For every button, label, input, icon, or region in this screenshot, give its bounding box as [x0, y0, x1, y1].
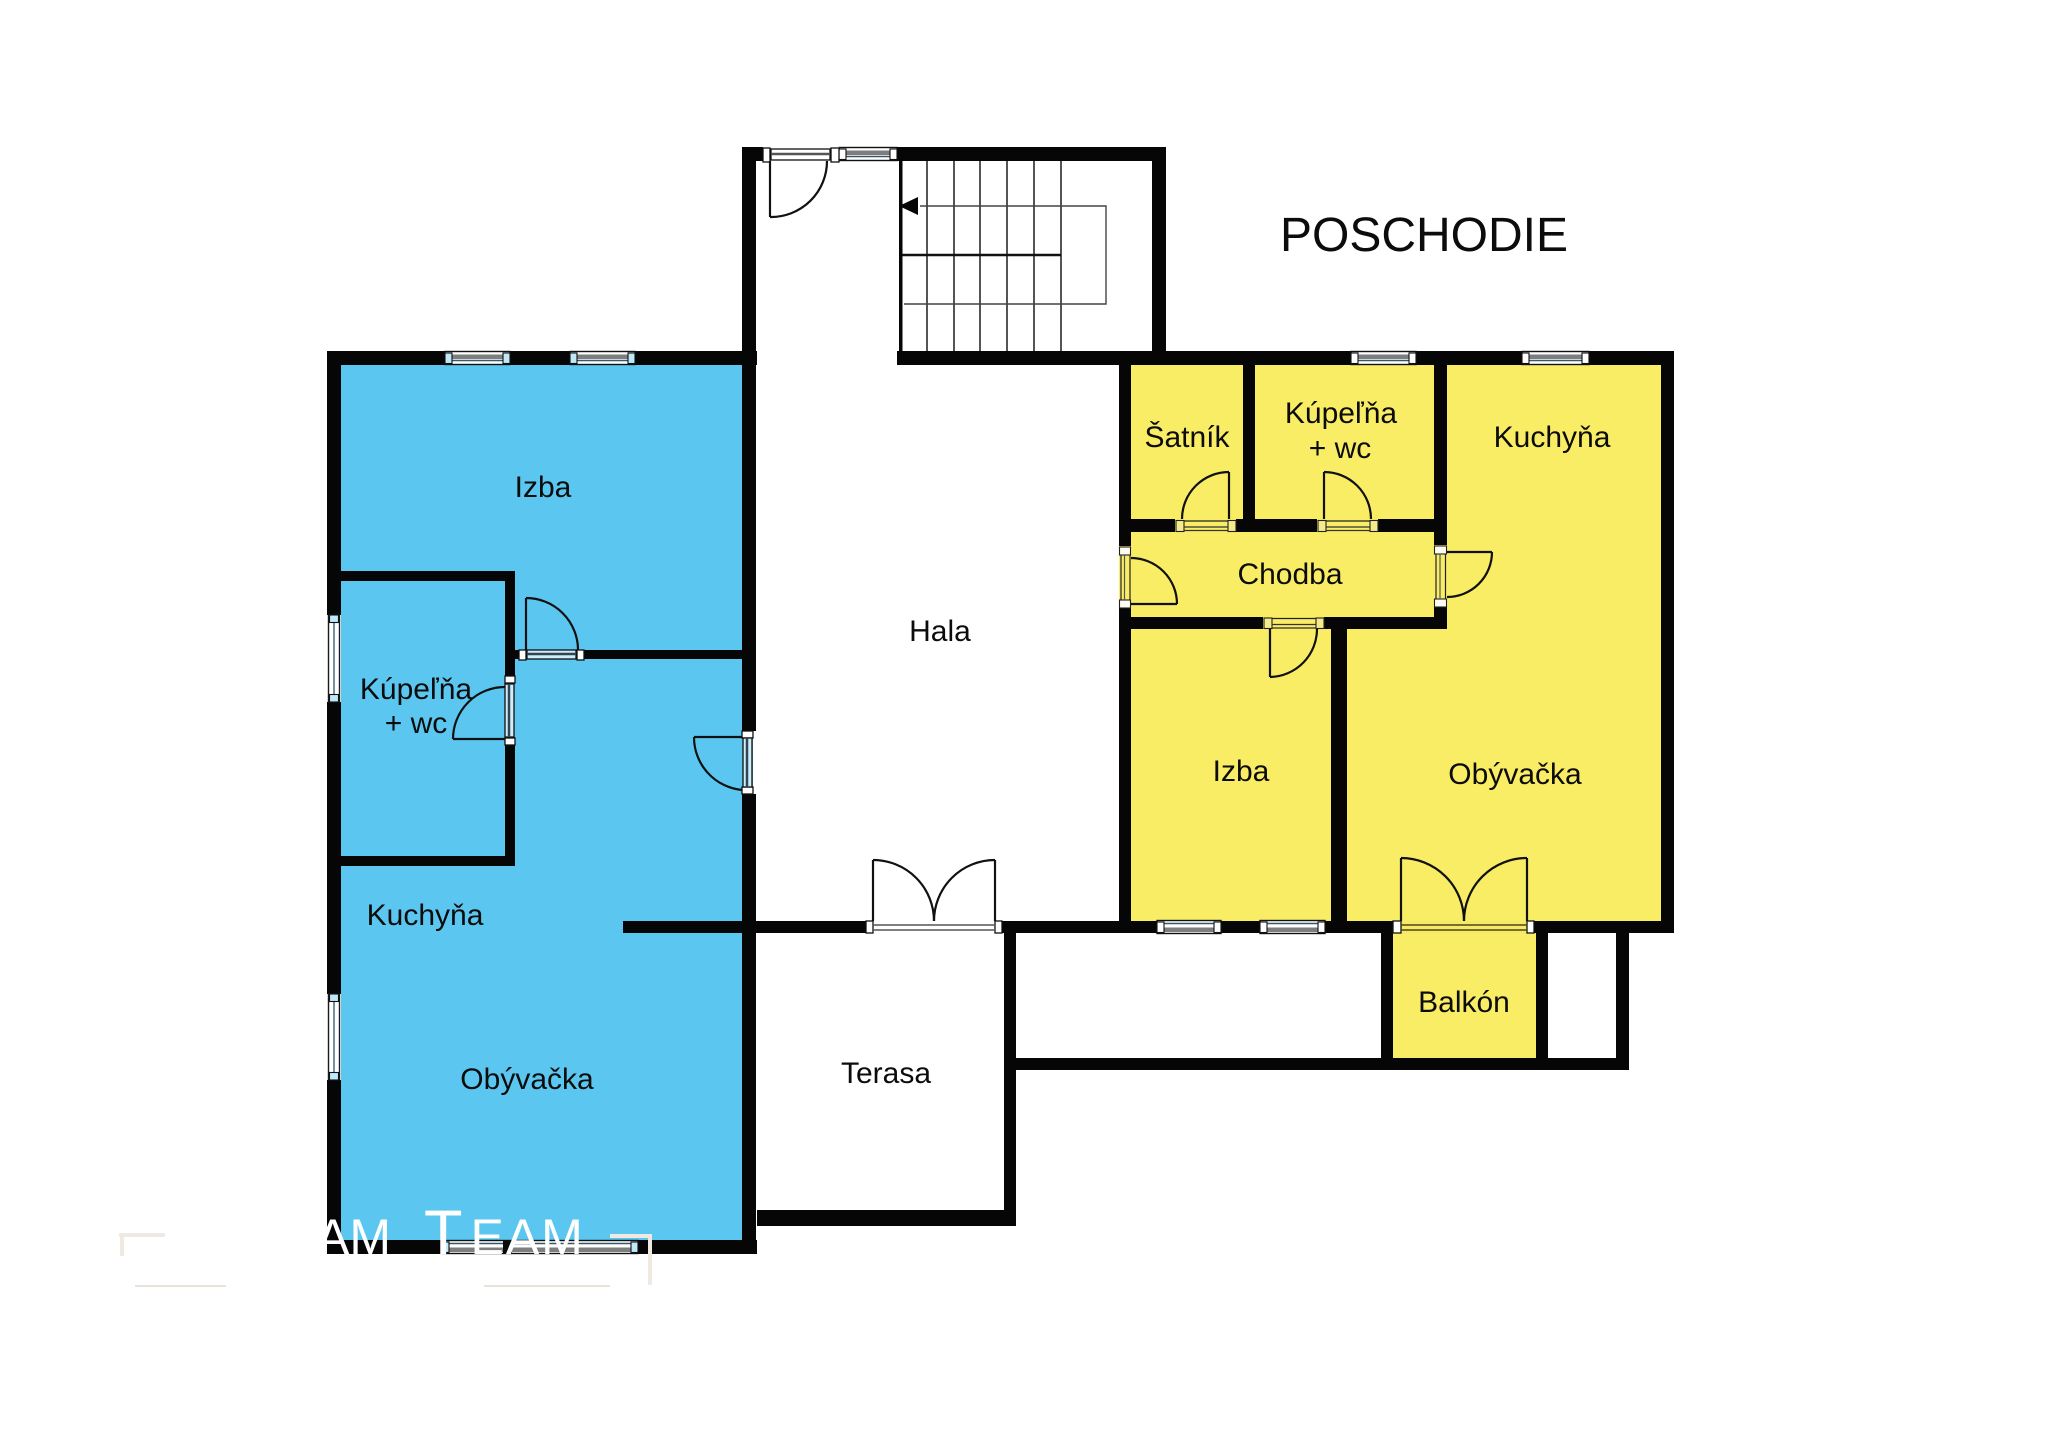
svg-text:Kuchyňa: Kuchyňa — [367, 899, 484, 932]
svg-text:Terasa: Terasa — [841, 1057, 931, 1090]
svg-text:Obývačka: Obývačka — [1448, 758, 1582, 791]
svg-text:+ wc: + wc — [385, 707, 448, 740]
svg-text:Izba: Izba — [1213, 755, 1270, 788]
svg-text:POSCHODIE: POSCHODIE — [1280, 209, 1568, 262]
svg-text:Hala: Hala — [909, 615, 971, 648]
svg-text:Izba: Izba — [515, 471, 572, 504]
svg-text:Kúpeľňa: Kúpeľňa — [360, 673, 472, 706]
svg-text:Chodba: Chodba — [1237, 558, 1342, 591]
svg-text:Obývačka: Obývačka — [460, 1063, 594, 1096]
svg-text:Balkón: Balkón — [1418, 986, 1510, 1019]
svg-text:AMTEAM: AMTEAM — [316, 1198, 585, 1268]
svg-text:Šatník: Šatník — [1144, 420, 1230, 454]
svg-text:Kúpeľňa: Kúpeľňa — [1285, 397, 1397, 430]
svg-text:Kuchyňa: Kuchyňa — [1494, 421, 1611, 454]
svg-text:+ wc: + wc — [1309, 432, 1372, 465]
